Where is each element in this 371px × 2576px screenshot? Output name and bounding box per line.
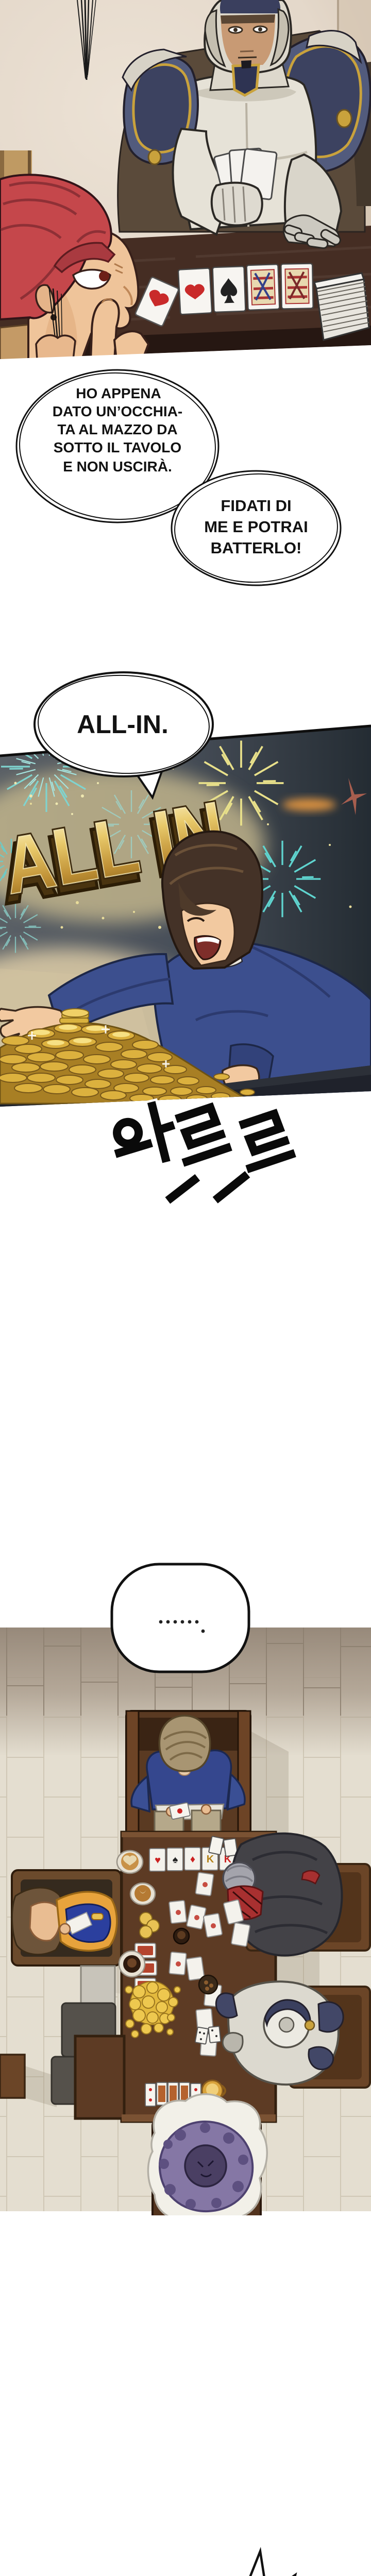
svg-text:K: K [207,1854,214,1865]
svg-text:HO APPENA: HO APPENA [76,385,161,401]
svg-text:DATO UN’OCCHIA-: DATO UN’OCCHIA- [53,403,183,419]
svg-text:♦: ♦ [190,1854,195,1865]
svg-text:BATTERLO!: BATTERLO! [211,539,302,557]
svg-text:TA AL MAZZO DA: TA AL MAZZO DA [57,421,177,437]
svg-text:FIDATI DI: FIDATI DI [221,497,291,515]
svg-text:♥: ♥ [155,1855,161,1866]
svg-text:SOTTO IL TAVOLO: SOTTO IL TAVOLO [54,439,181,455]
svg-text:♠: ♠ [173,1854,178,1866]
svg-text:E NON USCIRÀ.: E NON USCIRÀ. [63,459,172,474]
svg-text:ALL-IN.: ALL-IN. [77,710,168,739]
svg-text:ME E POTRAI: ME E POTRAI [204,518,308,536]
